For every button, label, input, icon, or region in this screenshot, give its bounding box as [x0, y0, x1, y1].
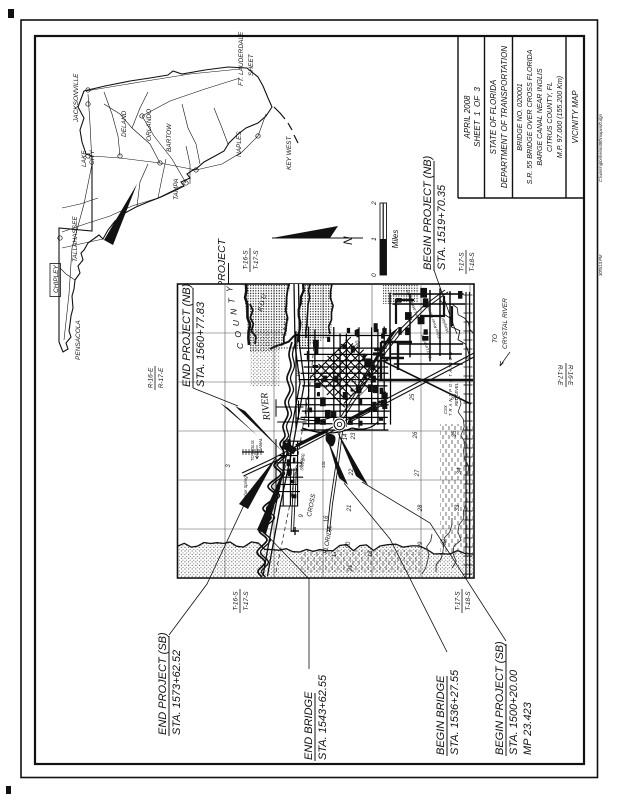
- svg-text:TAMPA: TAMPA: [173, 179, 180, 200]
- svg-text:19: 19: [296, 370, 302, 377]
- svg-text:32: 32: [442, 538, 448, 545]
- svg-text:CITY: CITY: [89, 150, 96, 165]
- svg-text:U: U: [231, 319, 241, 326]
- svg-text:0: 0: [371, 273, 378, 277]
- svg-text:STA. 1536+27.55: STA. 1536+27.55: [449, 669, 461, 755]
- svg-text:LAKE: LAKE: [81, 150, 88, 167]
- svg-text:24: 24: [373, 402, 379, 410]
- svg-text:TALLAHASSEE: TALLAHASSEE: [72, 216, 79, 262]
- svg-text:T-17-S: T-17-S: [253, 250, 260, 270]
- svg-text:28: 28: [418, 504, 424, 512]
- svg-text:SHEET 1 OF 3: SHEET 1 OF 3: [473, 86, 482, 147]
- svg-text:T-17-S: T-17-S: [455, 591, 462, 611]
- svg-text:300513 PM: 300513 PM: [598, 254, 603, 276]
- svg-text:CHIPLEY: CHIPLEY: [53, 265, 60, 293]
- svg-text:TO INGLIS: TO INGLIS: [250, 440, 255, 461]
- svg-text:BEGIN PROJECT (NB): BEGIN PROJECT (NB): [422, 155, 434, 270]
- svg-text:TRANSPORTATION: TRANSPORTATION: [448, 350, 453, 416]
- svg-text:DELAND: DELAND: [121, 110, 128, 137]
- svg-text:13: 13: [352, 376, 358, 383]
- svg-text:1: 1: [371, 237, 378, 241]
- svg-text:END PROJECT (SB): END PROJECT (SB): [157, 632, 169, 735]
- svg-text:T-17-S: T-17-S: [243, 591, 250, 611]
- svg-text:Miles: Miles: [391, 230, 400, 249]
- svg-text:KEY WEST: KEY WEST: [286, 135, 293, 170]
- svg-text:35: 35: [452, 430, 458, 437]
- svg-text:STA. 1573+62.52: STA. 1573+62.52: [171, 650, 183, 735]
- svg-text:JACKSONVILLE: JACKSONVILLE: [73, 73, 80, 123]
- svg-text:APRIL 2008: APRIL 2008: [463, 95, 472, 140]
- svg-text:CITRUS COUNTY, FL: CITRUS COUNTY, FL: [546, 82, 554, 152]
- svg-text:MP 23.423: MP 23.423: [522, 701, 534, 755]
- svg-text:TO: TO: [492, 334, 499, 343]
- svg-text:T-17-S: T-17-S: [459, 252, 466, 272]
- svg-text:DEPARTMENT OF TRANSPORTATION: DEPARTMENT OF TRANSPORTATION: [500, 46, 509, 188]
- svg-text:FT. LAUDERDALE: FT. LAUDERDALE: [238, 31, 245, 86]
- svg-text:16: 16: [324, 515, 330, 522]
- svg-text:C: C: [235, 342, 245, 349]
- svg-text:VICINITY MAP: VICINITY MAP: [571, 90, 580, 144]
- svg-text:21: 21: [347, 505, 353, 513]
- svg-text:R-17-E: R-17-E: [158, 367, 165, 388]
- svg-text:33: 33: [455, 504, 461, 511]
- svg-text:END BRIDGE: END BRIDGE: [303, 691, 315, 760]
- svg-text:17: 17: [332, 550, 338, 557]
- svg-text:23: 23: [351, 432, 357, 440]
- svg-text:RED LEVEL: RED LEVEL: [454, 382, 459, 406]
- svg-text:N: N: [229, 308, 239, 315]
- svg-text:T-18-S: T-18-S: [465, 591, 472, 611]
- svg-text:BEGIN PROJECT (SB): BEGIN PROJECT (SB): [494, 641, 506, 755]
- svg-text:25: 25: [410, 393, 416, 401]
- svg-text:29: 29: [418, 541, 424, 549]
- svg-text:20: 20: [346, 541, 352, 549]
- svg-text:18: 18: [368, 550, 374, 557]
- svg-text:T-18-S: T-18-S: [469, 252, 476, 272]
- svg-text:Y: Y: [225, 285, 235, 292]
- svg-text:R-17-E: R-17-E: [556, 365, 563, 386]
- svg-text:STA. 1560+77.83: STA. 1560+77.83: [195, 301, 207, 387]
- svg-text:9: 9: [299, 514, 305, 518]
- svg-text:S.R. 55 BRIDGE OVER CROSS FLOR: S.R. 55 BRIDGE OVER CROSS FLORIDA: [526, 49, 534, 184]
- svg-text:PENSACOLA: PENSACOLA: [75, 320, 82, 360]
- svg-text:3: 3: [226, 464, 232, 468]
- svg-text:STA. 1500+20.00: STA. 1500+20.00: [508, 669, 520, 755]
- svg-text:131: 131: [321, 461, 326, 468]
- svg-text:26: 26: [413, 431, 419, 439]
- svg-text:STATE OF FLORIDA: STATE OF FLORIDA: [489, 80, 498, 155]
- svg-text:27: 27: [415, 469, 421, 477]
- svg-text:STA. 1543+62.55: STA. 1543+62.55: [317, 674, 329, 760]
- svg-text:C:\warrington\reino380\mapvrd0: C:\warrington\reino380\mapvrd0.dgn: [598, 113, 603, 182]
- svg-text:34: 34: [457, 467, 463, 474]
- svg-text:STA. 1519+70.35: STA. 1519+70.35: [436, 184, 448, 270]
- svg-text:CRYSTAL RIVER: CRYSTAL RIVER: [502, 298, 509, 349]
- svg-text:14: 14: [343, 433, 349, 440]
- svg-text:END PROJECT (NB): END PROJECT (NB): [181, 283, 193, 387]
- svg-text:30: 30: [356, 340, 362, 347]
- svg-text:SHEET: SHEET: [248, 53, 255, 76]
- svg-text:O: O: [233, 331, 243, 338]
- svg-text:CANAL: CANAL: [258, 437, 263, 452]
- svg-text:BARGE CANAL NEAR INGLIS: BARGE CANAL NEAR INGLIS: [536, 68, 544, 166]
- svg-text:NAPLES: NAPLES: [236, 131, 243, 157]
- svg-text:R-16-E: R-16-E: [567, 365, 574, 386]
- svg-text:R-16-E: R-16-E: [148, 367, 155, 388]
- svg-text:21: 21: [348, 565, 354, 573]
- svg-text:ORLANDO: ORLANDO: [146, 109, 153, 141]
- svg-text:BEGIN BRIDGE: BEGIN BRIDGE: [435, 675, 447, 755]
- svg-text:T-16-S: T-16-S: [233, 591, 240, 611]
- svg-text:N: N: [341, 236, 355, 245]
- svg-text:M.P. 97.000 (155.200 Km): M.P. 97.000 (155.200 Km): [556, 76, 564, 158]
- svg-text:BARTOW: BARTOW: [166, 123, 173, 152]
- svg-text:T: T: [227, 297, 237, 303]
- svg-text:BRIDGE NO. 020001: BRIDGE NO. 020001: [516, 83, 524, 150]
- svg-text:T-16-S: T-16-S: [243, 250, 250, 270]
